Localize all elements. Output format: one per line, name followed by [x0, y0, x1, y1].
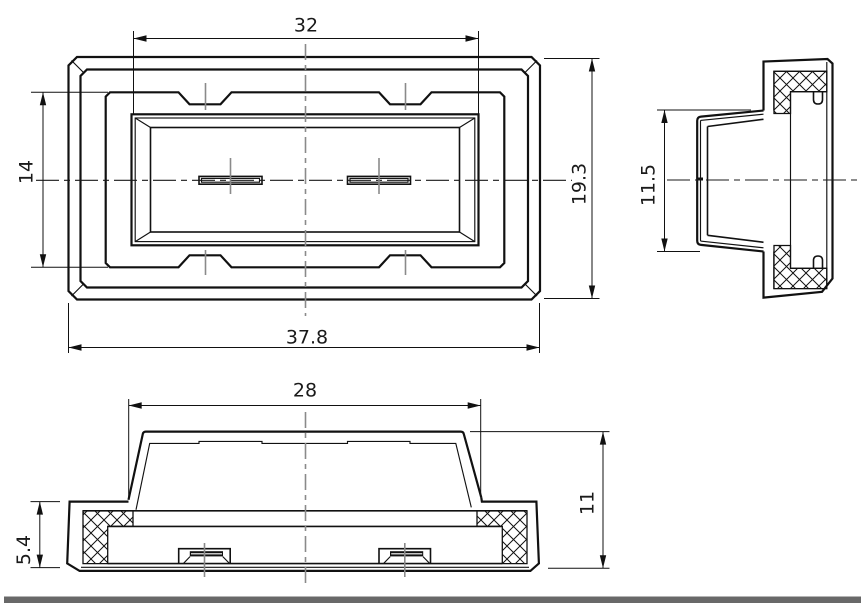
side-lens-inner — [701, 114, 764, 248]
side-glass-face — [708, 119, 764, 242]
bottom-glass-marks — [192, 457, 347, 493]
dimension-base-height: 5.4 — [13, 502, 60, 568]
front-second-frame — [81, 70, 529, 288]
bottom-section-hatch-left — [83, 511, 133, 564]
dim-text-14: 14 — [16, 160, 38, 184]
dimension-total-height: 11 — [470, 432, 610, 569]
dim-text-32: 32 — [294, 15, 318, 37]
technical-drawing: 32 37.8 14 19.3 — [0, 0, 865, 609]
dim-text-11-5: 11.5 — [638, 164, 660, 206]
dim-text-11: 11 — [577, 491, 599, 515]
side-hook-bottom — [814, 256, 823, 268]
front-centerlines — [36, 44, 572, 316]
dim-text-19-3: 19.3 — [569, 163, 591, 205]
dim-text-5-4: 5.4 — [13, 535, 35, 565]
bottom-separator-bar — [4, 597, 861, 604]
dim-text-37-8: 37.8 — [286, 327, 328, 349]
side-view: 11.5 — [638, 57, 859, 299]
side-section-hatch-bottom — [774, 246, 827, 289]
bottom-surface-marks — [67, 426, 541, 560]
drawing-canvas: 32 37.8 14 19.3 — [0, 0, 865, 609]
front-view — [36, 44, 572, 316]
side-hook-top — [814, 92, 823, 104]
bottom-lens-inner — [136, 441, 471, 509]
bottom-view: 28 11 5.4 — [13, 380, 610, 588]
side-section-hatch-top — [774, 71, 827, 113]
dimension-lens-height: 11.5 — [638, 110, 752, 252]
dimension-outer-height: 19.3 — [544, 59, 600, 299]
bottom-centerlines — [205, 412, 405, 587]
front-corner-bevels — [72, 61, 538, 297]
bottom-section-hatch-right — [477, 511, 527, 564]
dim-text-28: 28 — [293, 380, 317, 402]
side-glass-marks — [732, 138, 761, 220]
bottom-base-outline — [67, 498, 539, 571]
dimension-outer-width: 37.8 — [69, 303, 540, 353]
front-dimensions: 32 37.8 14 19.3 — [16, 15, 600, 354]
